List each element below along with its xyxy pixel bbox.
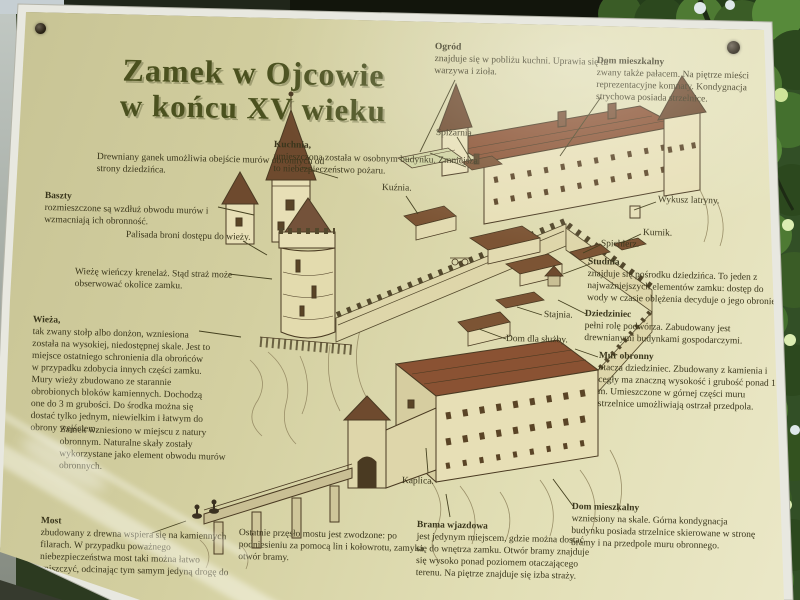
- annotation-baszty: Basztyrozmieszczone są wzdłuż obwodu mur…: [44, 191, 255, 232]
- annotation-text: Dom dla służby.: [506, 334, 568, 345]
- annotation-drewniany-ganek: Drewniany ganek umożliwia obejście murów…: [96, 152, 331, 181]
- annotation-text: znajduje się w pobliżu kuchni. Uprawia s…: [434, 54, 608, 77]
- annotation-text: Stajnia.: [544, 310, 573, 321]
- annotation-wykusz-latryny: Wykusz latryny.: [658, 195, 720, 208]
- annotation-brama: Brama wjazdowajest jedynym miejscem, gdz…: [416, 520, 597, 584]
- annotation-text: otacza dziedziniec. Zbudowany z kamienia…: [598, 363, 776, 412]
- annotation-przeslo: Ostatnie przęsło mostu jest zwodzone: po…: [238, 528, 439, 568]
- round-tower: [260, 198, 352, 350]
- annotation-krenelaz: Wieżę wieńczy krenelaż. Stąd straż może …: [74, 267, 259, 295]
- annotation-text: Kurnik.: [643, 228, 673, 239]
- annotation-spichlerz: Spichlerz.: [601, 239, 640, 252]
- annotation-spizarnia: Spiżarnia.: [436, 128, 475, 141]
- annotation-studnia: Studniaznajduje się pośrodku dziedzińca.…: [587, 257, 780, 309]
- annotation-text: Spiżarnia.: [436, 128, 474, 139]
- annotation-text: Drewniany ganek umożliwia obejście murów…: [97, 152, 325, 176]
- annotation-text: tak zwany stołp albo donżon, wzniesiona …: [30, 327, 210, 434]
- lower-house: [396, 340, 598, 482]
- annotation-text: Kuźnia.: [382, 183, 412, 194]
- annotation-text: znajduje się pośrodku dziedzińca. To jed…: [587, 269, 778, 307]
- annotation-wieza: Wieża,tak zwany stołp albo donżon, wznie…: [30, 315, 211, 439]
- annotation-kurnik: Kurnik.: [643, 228, 673, 241]
- annotation-dom-mieszkalny-dolny: Dom mieszkalnywzniesiony na skale. Górna…: [571, 502, 762, 554]
- annotation-mur-obronny: Mur obronnyotacza dziedziniec. Zbudowany…: [598, 351, 781, 415]
- mounting-bolt-top-left: [35, 23, 46, 34]
- annotation-dom-dla-sluzby: Dom dla służby.: [506, 334, 568, 347]
- riders-on-bridge: [192, 500, 219, 519]
- photo-of-information-board: Zamek w Ojcowie w końcu XV wieku Ogródzn…: [0, 0, 800, 600]
- annotation-dziedziniec: Dziedziniecpełni rolę podwórza. Zabudowa…: [584, 309, 780, 349]
- annotation-text: Ostatnie przęsło mostu jest zwodzone: po…: [238, 528, 423, 563]
- annotation-kaplica: Kaplica.: [402, 476, 434, 489]
- annotation-text: Spichlerz.: [601, 239, 639, 250]
- board-title: Zamek w Ojcowie w końcu XV wieku: [91, 52, 416, 129]
- annotation-text: Wykusz latryny.: [658, 195, 720, 206]
- information-board: Zamek w Ojcowie w końcu XV wieku Ogródzn…: [0, 0, 800, 600]
- annotation-text: Wieżę wieńczy krenelaż. Stąd straż może …: [75, 267, 233, 291]
- annotation-text: Kaplica.: [402, 476, 434, 487]
- annotation-kuznia: Kuźnia.: [382, 183, 412, 196]
- annotation-text: jest jedynym miejscem, gdzie można dosta…: [416, 532, 590, 582]
- annotation-text: Zamek wzniesiono w miejscu z natury obro…: [59, 425, 226, 472]
- title-line-2: w końcu XV wieku: [91, 88, 416, 129]
- annotation-palisada: Palisada broni dostępu do wieży.: [126, 230, 301, 246]
- annotation-stajnia: Stajnia.: [544, 310, 573, 323]
- annotation-skaly: Zamek wzniesiono w miejscu z natury obro…: [59, 425, 232, 477]
- annotation-text: pełni rolę podwórza. Zabudowany jest dre…: [584, 321, 742, 347]
- annotation-text: zwany także pałacem. Na piętrze mieści r…: [596, 68, 749, 104]
- annotation-text: wzniesiony na skale. Górna kondygnacja b…: [571, 514, 755, 551]
- mounting-bolt-top-right: [727, 41, 740, 54]
- annotation-text: rozmieszczone są wzdłuż obwodu murów i w…: [44, 203, 208, 227]
- annotation-dom-mieszkalny-gorny: Dom mieszkalnyzwany także pałacem. Na pi…: [596, 56, 765, 108]
- annotation-text: Palisada broni dostępu do wieży.: [126, 230, 251, 243]
